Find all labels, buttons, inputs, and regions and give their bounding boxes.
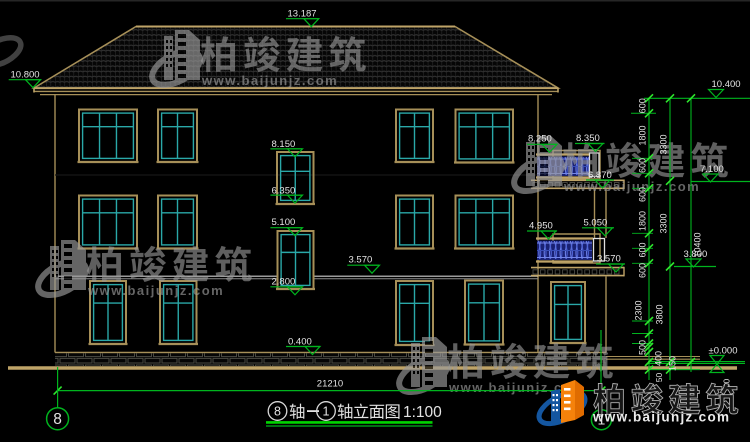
svg-text:5.100: 5.100	[272, 217, 296, 228]
svg-text:1: 1	[323, 405, 330, 419]
svg-text:5.050: 5.050	[584, 218, 608, 229]
svg-text:0.400: 0.400	[288, 337, 312, 348]
svg-text:±0.000: ±0.000	[709, 346, 738, 357]
svg-text:8: 8	[274, 405, 281, 419]
svg-text:www.baijunjz.com: www.baijunjz.com	[592, 410, 730, 425]
svg-text:13.187: 13.187	[288, 9, 317, 20]
svg-text:3.800: 3.800	[684, 249, 708, 260]
svg-text:3.570: 3.570	[597, 254, 621, 265]
svg-text:500: 500	[638, 340, 648, 355]
svg-text:600: 600	[638, 98, 648, 113]
svg-text:600: 600	[638, 158, 648, 173]
svg-text:1800: 1800	[638, 211, 648, 231]
svg-text:6.870: 6.870	[588, 170, 612, 181]
svg-text:4.950: 4.950	[529, 221, 553, 232]
svg-text:3300: 3300	[659, 213, 669, 233]
svg-text:3800: 3800	[655, 304, 665, 324]
svg-text:1800: 1800	[638, 125, 648, 145]
svg-text:8.250: 8.250	[528, 134, 552, 145]
svg-text:150: 150	[668, 356, 678, 371]
svg-text:7.100: 7.100	[700, 164, 724, 175]
svg-text:600: 600	[638, 263, 648, 278]
svg-text:2300: 2300	[634, 300, 644, 320]
svg-text:21210: 21210	[317, 379, 343, 390]
svg-text:10.400: 10.400	[712, 79, 741, 90]
svg-text:10.800: 10.800	[11, 70, 40, 81]
svg-text:3.570: 3.570	[349, 255, 373, 266]
svg-text:400: 400	[654, 351, 664, 366]
svg-text:www.baijunjz.com: www.baijunjz.com	[563, 179, 700, 194]
svg-text:50: 50	[654, 373, 664, 383]
svg-text:2.800: 2.800	[272, 276, 296, 287]
svg-text:www.baijunjz.com: www.baijunjz.com	[87, 283, 224, 298]
svg-text:600: 600	[638, 242, 648, 257]
svg-text:8: 8	[53, 411, 62, 428]
svg-text:www.baijunjz.com: www.baijunjz.com	[201, 73, 338, 88]
svg-text:3300: 3300	[659, 134, 669, 154]
svg-text:600: 600	[638, 187, 648, 202]
svg-text:8.350: 8.350	[576, 133, 600, 144]
svg-text:1:100: 1:100	[403, 404, 442, 421]
